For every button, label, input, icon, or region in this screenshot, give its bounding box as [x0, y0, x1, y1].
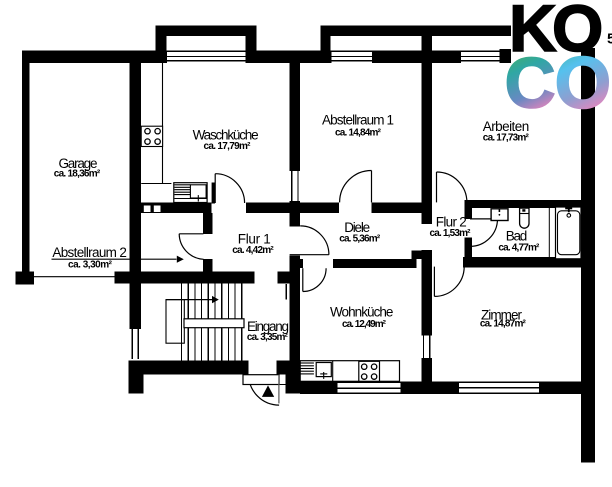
svg-text:ca. 14,84m²: ca. 14,84m² [335, 127, 382, 138]
svg-text:ca. 4,42m²: ca. 4,42m² [232, 245, 274, 256]
svg-text:5: 5 [607, 30, 612, 47]
svg-text:ca. 18,36m²: ca. 18,36m² [54, 168, 101, 179]
svg-text:Flur 1: Flur 1 [238, 231, 271, 246]
svg-text:Wohnküche: Wohnküche [330, 304, 394, 319]
svg-text:O: O [555, 43, 612, 124]
svg-text:ca. 5,36m²: ca. 5,36m² [339, 234, 381, 245]
svg-text:ca. 17,73m²: ca. 17,73m² [483, 132, 530, 143]
svg-text:ca. 3,30m²: ca. 3,30m² [68, 260, 113, 271]
svg-text:ca. 1,53m²: ca. 1,53m² [430, 228, 472, 239]
svg-text:C: C [505, 44, 556, 123]
svg-text:ca. 17,79m²: ca. 17,79m² [204, 141, 252, 152]
svg-text:ca. 14,87m²: ca. 14,87m² [480, 318, 527, 329]
svg-text:ca. 12,49m²: ca. 12,49m² [342, 319, 387, 330]
svg-text:Abstellraum 1: Abstellraum 1 [322, 112, 394, 127]
svg-text:ca. 3,35m²: ca. 3,35m² [247, 332, 289, 343]
svg-text:ca. 4,77m²: ca. 4,77m² [498, 242, 540, 253]
svg-text:Abstellraum 2: Abstellraum 2 [52, 245, 127, 260]
